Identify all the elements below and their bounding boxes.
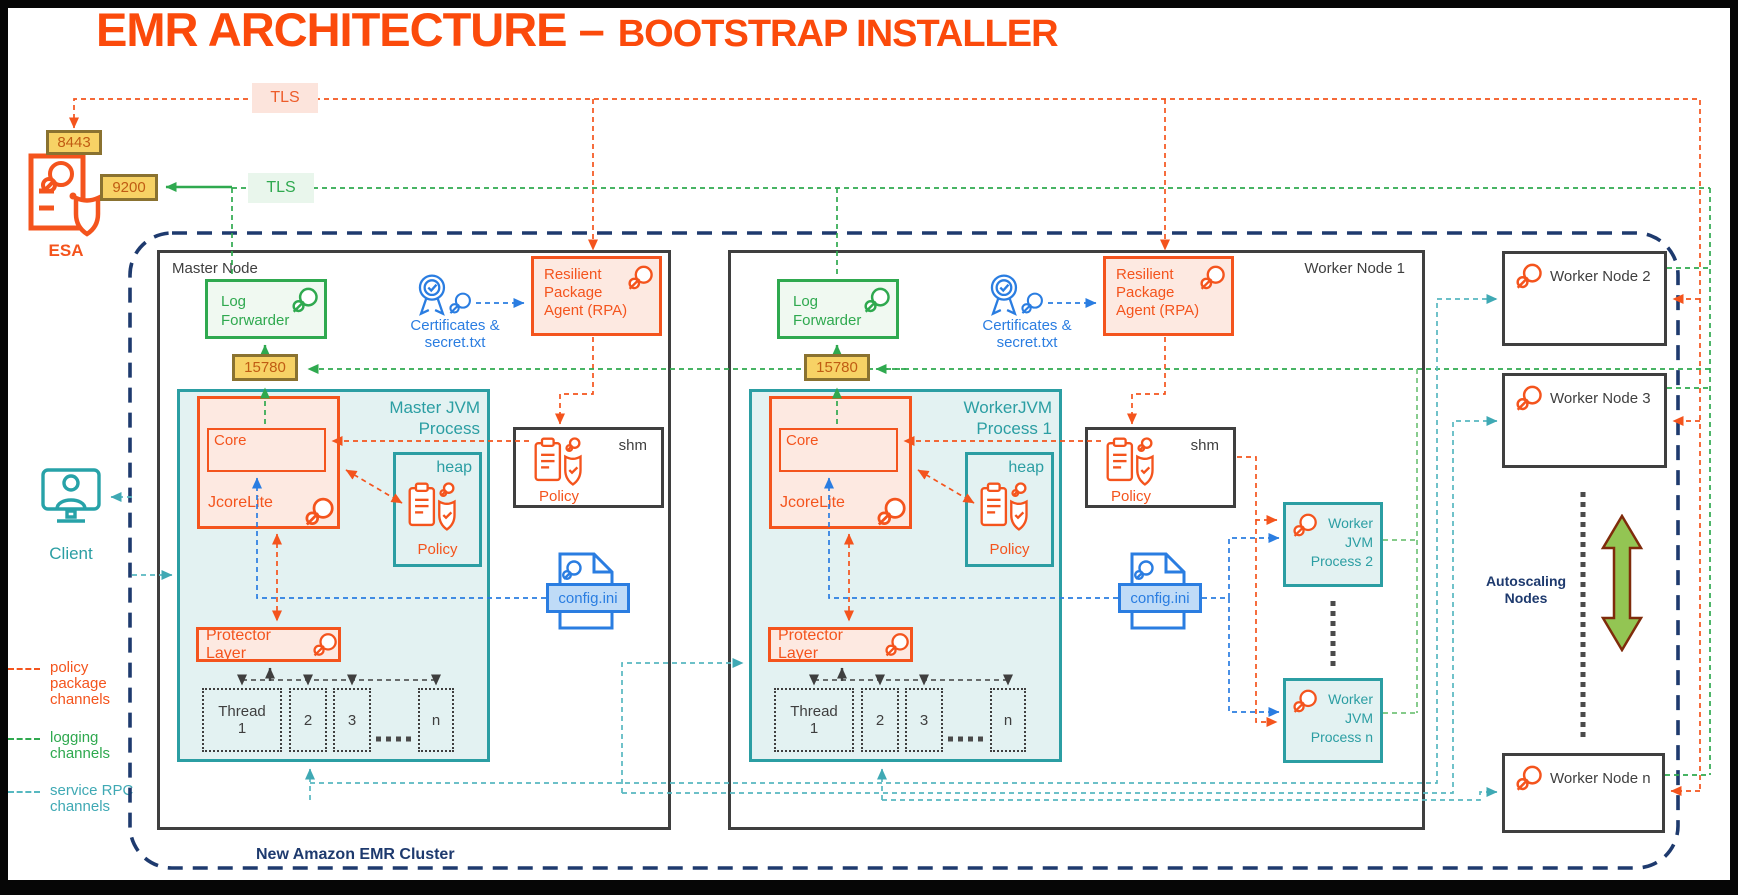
worker-node-2: Worker Node 2	[1502, 251, 1667, 346]
tls-policy-badge: TLS	[252, 83, 318, 113]
port-8443-badge: 8443	[46, 130, 102, 155]
worker-node-3: Worker Node 3	[1502, 373, 1667, 468]
master-rpa: Resilient Package Agent (RPA)	[531, 256, 662, 336]
legend-policy-dash-icon	[8, 668, 40, 670]
bug-icon	[305, 497, 335, 527]
master-shm-policy-label: Policy	[516, 488, 602, 505]
legend-logging-dash-icon	[8, 738, 40, 740]
worker-node-2-label: Worker Node 2	[1550, 268, 1651, 285]
autoscaling-arrow-icon	[1598, 514, 1646, 652]
esa-icon	[26, 146, 106, 241]
worker1-log-forwarder: Log Forwarder	[777, 279, 899, 339]
thread-label: 2	[304, 712, 312, 729]
thread-label: n	[1004, 712, 1012, 729]
cluster-label: New Amazon EMR Cluster	[256, 846, 455, 864]
legend-rpc-dash-icon	[8, 791, 40, 793]
bug-icon	[313, 632, 338, 658]
worker-jvm-2-label: Worker JVM Process 2	[1305, 514, 1373, 571]
worker1-thread-1: Thread 1	[774, 688, 854, 752]
master-core-label: Core	[214, 432, 247, 449]
certificate-medal-icon	[986, 273, 1024, 321]
thread-label: n	[432, 712, 440, 729]
esa-label: ESA	[26, 241, 106, 261]
policy-icon	[407, 481, 459, 533]
master-jcorelite-label: JcoreLite	[208, 494, 273, 512]
master-shm: shm Policy	[513, 427, 664, 508]
legend-logging-label: logging channels	[50, 730, 142, 762]
master-config-label: config.ini	[558, 590, 617, 607]
worker1-heap-label: heap	[1008, 459, 1044, 477]
bug-icon	[877, 497, 907, 527]
master-shm-label: shm	[619, 437, 647, 454]
worker1-config-label: config.ini	[1130, 590, 1189, 607]
master-thread-2: 2	[289, 688, 327, 752]
master-log-forwarder-label: Log Forwarder	[221, 292, 296, 330]
bug-icon	[449, 292, 472, 315]
emr-architecture-diagram: EMR ARCHITECTURE – BOOTSTRAP INSTALLER E…	[0, 0, 1738, 895]
master-port-15780-badge: 15780	[232, 354, 298, 381]
worker-node-n-label: Worker Node n	[1550, 770, 1651, 787]
legend-policy-label: policy package channels	[50, 660, 142, 708]
legend-rpc-channels: service RPC channels	[8, 783, 142, 815]
bug-icon	[1516, 385, 1543, 412]
worker-node-3-label: Worker Node 3	[1550, 390, 1651, 407]
master-heap-label: heap	[436, 459, 472, 477]
policy-icon	[1105, 436, 1157, 488]
master-core: Core	[207, 428, 326, 472]
bug-icon	[292, 287, 319, 314]
worker1-protector-layer: Protector Layer	[768, 627, 913, 662]
bug-icon	[1200, 265, 1226, 291]
legend-logging-channels: logging channels	[8, 730, 142, 762]
worker1-heap-policy-label: Policy	[968, 541, 1051, 558]
worker1-certificates-label: Certificates & secret.txt	[967, 317, 1087, 351]
client-icon	[40, 467, 102, 525]
master-protector-label: Protector Layer	[206, 627, 311, 663]
client-label: Client	[34, 544, 108, 564]
worker1-core: Core	[779, 428, 898, 472]
bug-icon	[864, 287, 891, 314]
worker1-thread-3: 3	[905, 688, 943, 752]
worker1-shm-label: shm	[1191, 437, 1219, 454]
master-log-forwarder: Log Forwarder	[205, 279, 327, 339]
worker-jvm-process-n: Worker JVM Process n	[1283, 678, 1383, 763]
bug-icon	[628, 265, 654, 291]
worker1-heap: heap Policy	[965, 452, 1054, 567]
worker1-port-15780-badge: 15780	[804, 354, 870, 381]
thread-label: 3	[920, 712, 928, 729]
worker-jvm-process-2: Worker JVM Process 2	[1283, 502, 1383, 587]
title-main: EMR ARCHITECTURE –	[96, 2, 604, 57]
bug-icon	[885, 632, 910, 658]
tls-logging-badge: TLS	[248, 173, 314, 203]
thread-label: 2	[876, 712, 884, 729]
worker1-jvm-title: WorkerJVM Process 1	[940, 397, 1052, 439]
master-config-banner: config.ini	[546, 583, 630, 613]
worker1-config-banner: config.ini	[1118, 583, 1202, 613]
policy-icon	[533, 436, 585, 488]
legend-policy-channels: policy package channels	[8, 660, 142, 708]
bug-icon	[1516, 765, 1543, 792]
master-thread-3: 3	[333, 688, 371, 752]
worker1-core-label: Core	[786, 432, 819, 449]
bug-icon	[1021, 292, 1044, 315]
thread-label: Thread 1	[786, 703, 842, 737]
worker1-rpa: Resilient Package Agent (RPA)	[1103, 256, 1234, 336]
legend-rpc-label: service RPC channels	[50, 783, 142, 815]
worker-jvm-n-label: Worker JVM Process n	[1305, 690, 1373, 747]
master-jcorelite: JcoreLite Core	[197, 396, 340, 529]
master-thread-1: Thread 1	[202, 688, 282, 752]
worker1-thread-n: n	[990, 688, 1026, 752]
master-thread-n: n	[418, 688, 454, 752]
master-certificates-label: Certificates & secret.txt	[395, 317, 515, 351]
master-heap: heap Policy	[393, 452, 482, 567]
policy-icon	[979, 481, 1031, 533]
certificate-medal-icon	[414, 273, 452, 321]
worker1-jcorelite: JcoreLite Core	[769, 396, 912, 529]
worker-node-1-title: Worker Node 1	[1245, 260, 1405, 277]
port-9200-badge: 9200	[100, 174, 158, 201]
bug-icon	[1516, 263, 1543, 290]
master-jvm-title: Master JVM Process	[368, 397, 480, 439]
page-title: EMR ARCHITECTURE – BOOTSTRAP INSTALLER	[96, 2, 1058, 57]
master-rpa-label: Resilient Package Agent (RPA)	[544, 266, 632, 320]
worker1-log-forwarder-label: Log Forwarder	[793, 292, 868, 330]
worker1-shm-policy-label: Policy	[1088, 488, 1174, 505]
worker1-rpa-label: Resilient Package Agent (RPA)	[1116, 266, 1204, 320]
worker1-jcorelite-label: JcoreLite	[780, 494, 845, 512]
worker1-protector-label: Protector Layer	[778, 627, 883, 663]
worker-node-n: Worker Node n	[1502, 753, 1665, 833]
thread-label: 3	[348, 712, 356, 729]
master-heap-policy-label: Policy	[396, 541, 479, 558]
master-protector-layer: Protector Layer	[196, 627, 341, 662]
worker1-thread-2: 2	[861, 688, 899, 752]
thread-label: Thread 1	[214, 703, 270, 737]
master-node-title: Master Node	[172, 260, 258, 277]
worker1-shm: shm Policy	[1085, 427, 1236, 508]
title-sub: BOOTSTRAP INSTALLER	[618, 13, 1058, 56]
autoscaling-label: Autoscaling Nodes	[1478, 573, 1574, 607]
